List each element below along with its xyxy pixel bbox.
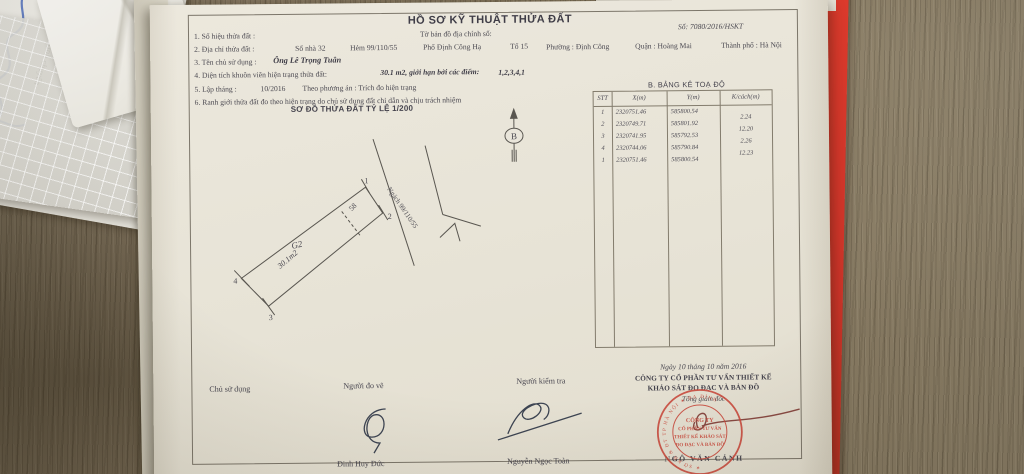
distance-value: 12.23 [720,149,772,156]
row-y: 585800.54 [671,108,698,115]
row-x: 2320749.71 [616,121,646,128]
point-4-label: 4 [233,276,237,285]
row-stt: 3 [594,133,612,140]
owner-name: Ông Lê Trọng Tuân [273,55,341,65]
row-y: 585792.53 [671,132,698,139]
checker-name: Nguyễn Ngọc Toàn [507,456,569,466]
row-stt: 1 [594,157,612,164]
checker-signature-label: Người kiểm tra [516,376,565,385]
table-gridline [667,91,670,346]
owner-signature-label: Chủ sử dụng [209,384,250,393]
coordinate-table: STT X(m) Y(m) K/cách(m) 1 2320751.46 585… [593,89,775,348]
north-label: B [511,131,517,141]
survey-month: 10/2016 [260,84,285,93]
surveyor-name: Đinh Huy Đức [337,459,385,468]
parcel-outline [240,187,383,306]
address-house-no: Số nhà 32 [295,44,325,53]
house-number-label: 58 [347,201,359,213]
col-header-y: Y(m) [667,94,720,102]
point-3-label: 3 [269,313,273,322]
land-survey-document: HỒ SƠ KỸ THUẬT THỬA ĐẤT Số: 7080/2016/HS… [150,0,833,474]
row-x: 2320751.46 [616,157,646,164]
col-header-stt: STT [594,95,612,102]
stamp-line2: CỔ PHẦN TƯ VẤN [678,426,722,432]
distance-value: 2.24 [720,113,772,120]
checker-signature [489,389,590,450]
address-city: Thành phố : Hà Nội [721,40,782,50]
address-group: Tổ 15 [510,42,528,51]
address-street: Phố Định Công Hạ [423,42,481,52]
field-date-label: 5. Lập tháng : [194,84,236,93]
north-arrow-icon: B [505,108,524,162]
stamp-line3: THIẾT KẾ KHẢO SÁT [674,434,726,441]
surveyor-signature-label: Người đo vẽ [343,381,383,390]
field-owner-label: 3. Tên chủ sử dụng : [194,57,256,67]
svg-text:✶ SỞ KH & ĐT TP HÀ NỘI ✶ BA ĐÌ: ✶ SỞ KH & ĐT TP HÀ NỘI ✶ BA ĐÌNH [662,394,718,470]
point-1-label: 1 [364,176,368,185]
row-x: 2320751.46 [616,109,646,116]
document-number: Số: 7080/2016/HSKT [678,22,743,32]
document-title: HỒ SƠ KỸ THUẬT THỬA ĐẤT [366,13,614,27]
coord-table-title: B. BẢNG KÊ TOẠ ĐỘ [626,80,746,90]
address-alley: Hẻm 99/110/55 [350,43,397,52]
field-area-label: 4. Diện tích khuôn viên hiện trạng thửa … [194,70,327,80]
company-round-stamp: ✶ SỞ KH & ĐT TP HÀ NỘI ✶ BA ĐÌNH CÔNG TY… [653,386,746,474]
desk-photo: tranh chấp, thể rong quá trình chuyển HỒ… [0,0,1024,474]
field-map-sheet: Tờ bản đồ địa chính số: [420,29,492,39]
table-gridline [612,92,615,347]
row-stt: 1 [594,109,612,116]
address-district: Quận : Hoàng Mai [635,41,692,51]
row-x: 2320744.06 [616,145,646,152]
col-header-x: X(m) [612,94,667,102]
parcel-sketch: B 1 2 3 4 58 G2 30.1m2 Ngách 99/110/55 [221,99,603,338]
stamp-ring-text: ✶ SỞ KH & ĐT TP HÀ NỘI ✶ BA ĐÌNH [662,394,718,470]
address-ward: Phường : Định Công [546,42,609,52]
row-stt: 2 [594,121,612,128]
row-stt: 4 [594,145,612,152]
row-y: 585800.54 [671,156,698,163]
point-2-label: 2 [388,212,392,221]
stamp-line4: ĐO ĐẠC VÀ BẢN ĐỒ [676,442,725,448]
table-gridline [594,104,772,107]
area-label: 30.1m2 [275,248,300,271]
row-x: 2320741.95 [616,133,646,140]
row-y: 585801.92 [671,120,698,127]
distance-value: 12.20 [720,125,772,132]
stamp-line1: CÔNG TY [686,416,714,424]
row-y: 585790.84 [671,144,698,151]
field-address-label: 2. Địa chỉ thửa đất : [194,44,254,54]
boundary-points: 1,2,3,4,1 [498,68,525,77]
alley-name-label: Ngách 99/110/55 [385,186,419,231]
distance-value: 2.26 [720,137,772,144]
field-parcel-number: 1. Số hiệu thửa đất : [194,31,255,41]
survey-method: Theo phương án : Trích đo hiện trạng [302,83,416,93]
surveyor-signature [346,401,417,457]
col-header-distance: K/cách(m) [720,93,772,100]
area-value: 30.1 m2, giới hạn bởi các điểm: [380,67,479,77]
